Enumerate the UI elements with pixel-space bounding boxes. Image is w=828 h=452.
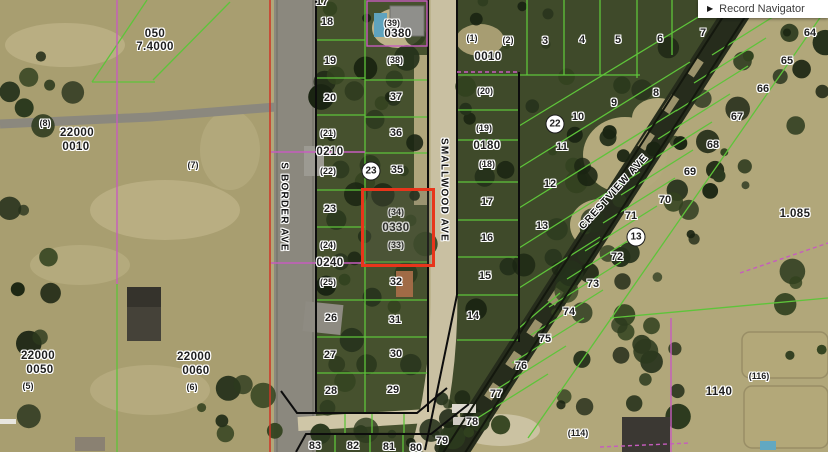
lot-number-label: 66 xyxy=(757,83,769,95)
parcel-number-label: 0210 xyxy=(316,146,343,158)
lot-number-label: 3 xyxy=(542,35,548,47)
block-number-badge: 13 xyxy=(627,228,646,247)
lot-alt-label: (19) xyxy=(476,123,492,133)
parcel-number-label: 0380 xyxy=(384,28,411,40)
street-name-label: CRESTVIEW AVE xyxy=(577,152,650,232)
map-viewport[interactable]: 1718192023262728373635323130298382818079… xyxy=(0,0,828,452)
lot-alt-label: (2) xyxy=(503,35,514,45)
parcel-number-label: 0010 xyxy=(474,51,501,63)
lot-number-label: 70 xyxy=(659,194,671,206)
lot-number-label: 64 xyxy=(804,27,816,39)
lot-number-label: 79 xyxy=(436,435,448,447)
lot-number-label: 65 xyxy=(781,55,793,67)
lot-number-label: 81 xyxy=(383,441,395,452)
lot-alt-label: (1) xyxy=(467,33,478,43)
lot-number-label: 26 xyxy=(325,312,337,324)
lot-number-label: 27 xyxy=(324,349,336,361)
lot-number-label: 12 xyxy=(544,178,556,190)
chevron-right-icon: ▶ xyxy=(707,0,713,18)
lot-alt-label: (21) xyxy=(320,128,336,138)
lot-number-label: 9 xyxy=(611,97,617,109)
lot-number-label: 17 xyxy=(481,196,493,208)
lot-number-label: 35 xyxy=(391,164,403,176)
parcel-number-label: 22000 xyxy=(21,350,55,362)
lot-alt-label: (116) xyxy=(749,371,770,381)
lot-alt-label: (8) xyxy=(40,118,51,128)
parcel-number-label: 0180 xyxy=(473,140,500,152)
street-name-label: SMALLWOOD AVE xyxy=(439,138,450,242)
lot-number-label: 69 xyxy=(684,166,696,178)
lot-number-label: 71 xyxy=(625,210,637,222)
parcel-number-label: 22000 xyxy=(60,127,94,139)
lot-number-label: 82 xyxy=(347,440,359,452)
lot-number-label: 23 xyxy=(324,203,336,215)
lot-alt-label: (24) xyxy=(320,240,336,250)
lot-number-label: 76 xyxy=(515,360,527,372)
parcel-number-label: 22000 xyxy=(177,351,211,363)
lot-number-label: 11 xyxy=(556,141,568,153)
parcel-number-label: 7.4000 xyxy=(136,41,174,53)
parcel-number-label: 0240 xyxy=(316,257,343,269)
block-number-badge: 22 xyxy=(546,115,565,134)
lot-number-label: 36 xyxy=(390,127,402,139)
lot-number-label: 72 xyxy=(611,251,623,263)
parcel-number-label: 1140 xyxy=(706,386,733,398)
lot-number-label: 28 xyxy=(325,385,337,397)
lot-number-label: 13 xyxy=(536,220,548,232)
lot-number-label: 20 xyxy=(324,92,336,104)
parcel-number-label: 050 xyxy=(145,28,165,40)
parcel-number-label: 0060 xyxy=(182,365,209,377)
lot-number-label: 68 xyxy=(707,139,719,151)
lot-alt-label: (114) xyxy=(568,428,589,438)
lot-number-label: 16 xyxy=(481,232,493,244)
parcel-number-label: 0010 xyxy=(62,141,89,153)
record-navigator-label: Record Navigator xyxy=(719,0,805,18)
lot-number-label: 18 xyxy=(321,16,333,28)
lot-number-label: 15 xyxy=(479,270,491,282)
lot-number-label: 74 xyxy=(563,306,575,318)
block-number-badge: 23 xyxy=(362,162,381,181)
lot-number-label: 30 xyxy=(390,348,402,360)
lot-alt-label: (5) xyxy=(23,381,34,391)
lot-alt-label: (25) xyxy=(320,277,336,287)
record-navigator[interactable]: ▶ Record Navigator xyxy=(698,0,828,18)
lot-number-label: 10 xyxy=(572,111,584,123)
lot-number-label: 6 xyxy=(657,33,663,45)
parcel-number-label: 1.085 xyxy=(780,208,811,220)
lot-number-label: 17 xyxy=(316,0,328,8)
lot-number-label: 29 xyxy=(387,384,399,396)
parcel-number-label: 0050 xyxy=(26,364,53,376)
street-name-label: S BORDER AVE xyxy=(279,162,290,251)
lot-number-label: 31 xyxy=(389,314,401,326)
lot-number-label: 83 xyxy=(309,440,321,452)
lot-number-label: 8 xyxy=(653,87,659,99)
lot-number-label: 5 xyxy=(615,34,621,46)
lot-number-label: 14 xyxy=(467,310,479,322)
lot-number-label: 19 xyxy=(324,55,336,67)
lot-number-label: 80 xyxy=(410,442,422,452)
lot-alt-label: (6) xyxy=(187,382,198,392)
lot-number-label: 75 xyxy=(539,333,551,345)
lot-number-label: 77 xyxy=(490,388,502,400)
lot-number-label: 7 xyxy=(700,27,706,39)
selected-parcel-highlight[interactable] xyxy=(361,188,435,267)
lot-number-label: 78 xyxy=(466,416,478,428)
lot-alt-label: (7) xyxy=(188,160,199,170)
lot-alt-label: (20) xyxy=(477,86,493,96)
lot-number-label: 67 xyxy=(731,111,743,123)
lot-number-label: 37 xyxy=(390,91,402,103)
lot-number-label: 73 xyxy=(587,278,599,290)
lot-alt-label: (22) xyxy=(320,166,336,176)
lot-alt-label: (18) xyxy=(479,159,495,169)
lot-alt-label: (39) xyxy=(384,18,400,28)
lot-number-label: 4 xyxy=(579,34,585,46)
lot-alt-label: (38) xyxy=(387,55,403,65)
lot-number-label: 32 xyxy=(390,276,402,288)
